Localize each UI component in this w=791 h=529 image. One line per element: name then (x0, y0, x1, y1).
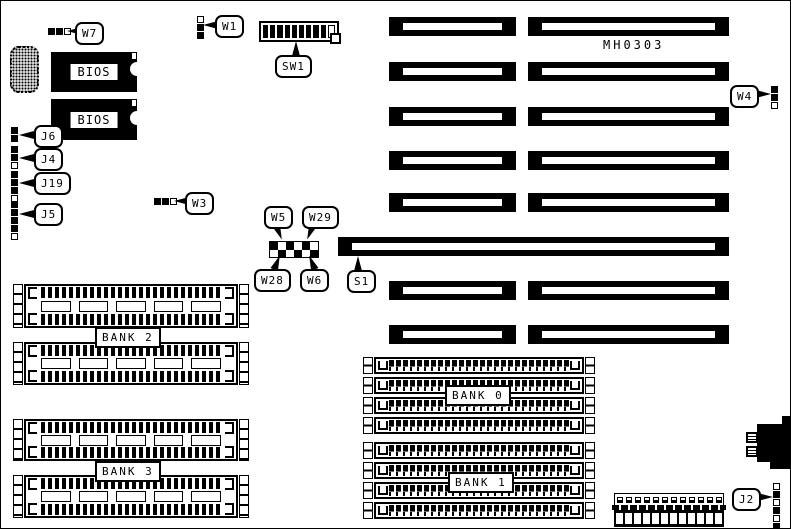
chip-notch (130, 111, 137, 125)
chip-pin1-mark (132, 53, 136, 59)
isa-slot-short (389, 281, 516, 300)
keyboard-connector (770, 460, 790, 469)
callout-j5-pointer (19, 210, 34, 218)
bank1-label: BANK 1 (448, 472, 514, 493)
socket-end (13, 284, 23, 328)
dip-switch-nub (330, 33, 341, 44)
callout-w7: W7 (75, 22, 104, 45)
socket-end (239, 475, 249, 518)
isa-slot-long (528, 151, 729, 170)
header-j6 (11, 127, 18, 143)
socket-end (13, 419, 23, 461)
bios-chip-2: BIOS (51, 99, 137, 140)
callout-w5: W5 (264, 206, 293, 229)
isa-slot-short (389, 17, 516, 36)
motherboard-diagram: MH0303 BIOS BIOS (0, 0, 791, 529)
bank0-label: BANK 0 (445, 385, 511, 406)
callout-w1: W1 (215, 15, 244, 38)
isa-slot-long (528, 17, 729, 36)
callout-sw1: SW1 (275, 55, 312, 78)
callout-j6-pointer (19, 131, 34, 139)
simm-socket-bank1-1 (363, 442, 595, 459)
callout-w3: W3 (185, 192, 214, 215)
callout-w29: W29 (302, 206, 339, 229)
s1-slot (338, 237, 729, 256)
socket-end (13, 342, 23, 385)
isa-slot-long (528, 325, 729, 344)
simm-socket-bank2-a (13, 284, 249, 328)
callout-j5: J5 (34, 203, 63, 226)
connector-plug (746, 446, 758, 457)
chip-pin1-mark (132, 100, 136, 106)
board-model-text: MH0303 (603, 39, 664, 51)
callout-j19-pointer (19, 179, 34, 187)
simm-socket-bank0-4 (363, 417, 595, 434)
bank2-label: BANK 2 (95, 327, 161, 348)
isa-slot-short (389, 151, 516, 170)
callout-j2: J2 (732, 488, 761, 511)
header-j4 (11, 146, 18, 170)
isa-slot-short (389, 107, 516, 126)
socket-end (239, 342, 249, 385)
isa-slot-short (389, 193, 516, 212)
callout-j4: J4 (34, 148, 63, 171)
callout-s1: S1 (347, 270, 376, 293)
callout-w4: W4 (730, 85, 759, 108)
crystal-oscillator (10, 46, 39, 93)
callout-j19: J19 (34, 172, 71, 195)
simm-socket-bank3-a (13, 419, 249, 461)
isa-slot-short (389, 325, 516, 344)
isa-slot-short (389, 62, 516, 81)
callout-sw1-pointer (292, 41, 300, 56)
callout-w6: W6 (300, 269, 329, 292)
header-j2 (773, 483, 780, 529)
dip-switch-sw1 (259, 21, 339, 42)
isa-slot-long (528, 193, 729, 212)
header-j19 (11, 171, 18, 203)
isa-slot-long (528, 107, 729, 126)
socket-end (239, 284, 249, 328)
callout-j4-pointer (19, 154, 34, 162)
chip-notch (130, 62, 137, 76)
keyboard-connector (757, 424, 790, 462)
bios-chip-label: BIOS (71, 112, 118, 128)
callout-j6: J6 (34, 125, 63, 148)
bios-chip-1: BIOS (51, 52, 137, 92)
isa-slot-long (528, 281, 729, 300)
simm-socket-bank0-1 (363, 357, 595, 374)
jumper-w4 (771, 86, 778, 110)
power-connector (612, 493, 726, 527)
simm-socket-bank2-b (13, 342, 249, 385)
socket-end (13, 475, 23, 518)
simm-socket-bank1-4 (363, 502, 595, 519)
socket-end (239, 419, 249, 461)
isa-slot-long (528, 62, 729, 81)
callout-s1-pointer (354, 256, 362, 271)
bank3-label: BANK 3 (95, 461, 161, 482)
connector-plug (746, 432, 758, 443)
header-j5 (11, 201, 18, 241)
callout-w28: W28 (254, 269, 291, 292)
bios-chip-label: BIOS (71, 64, 118, 80)
